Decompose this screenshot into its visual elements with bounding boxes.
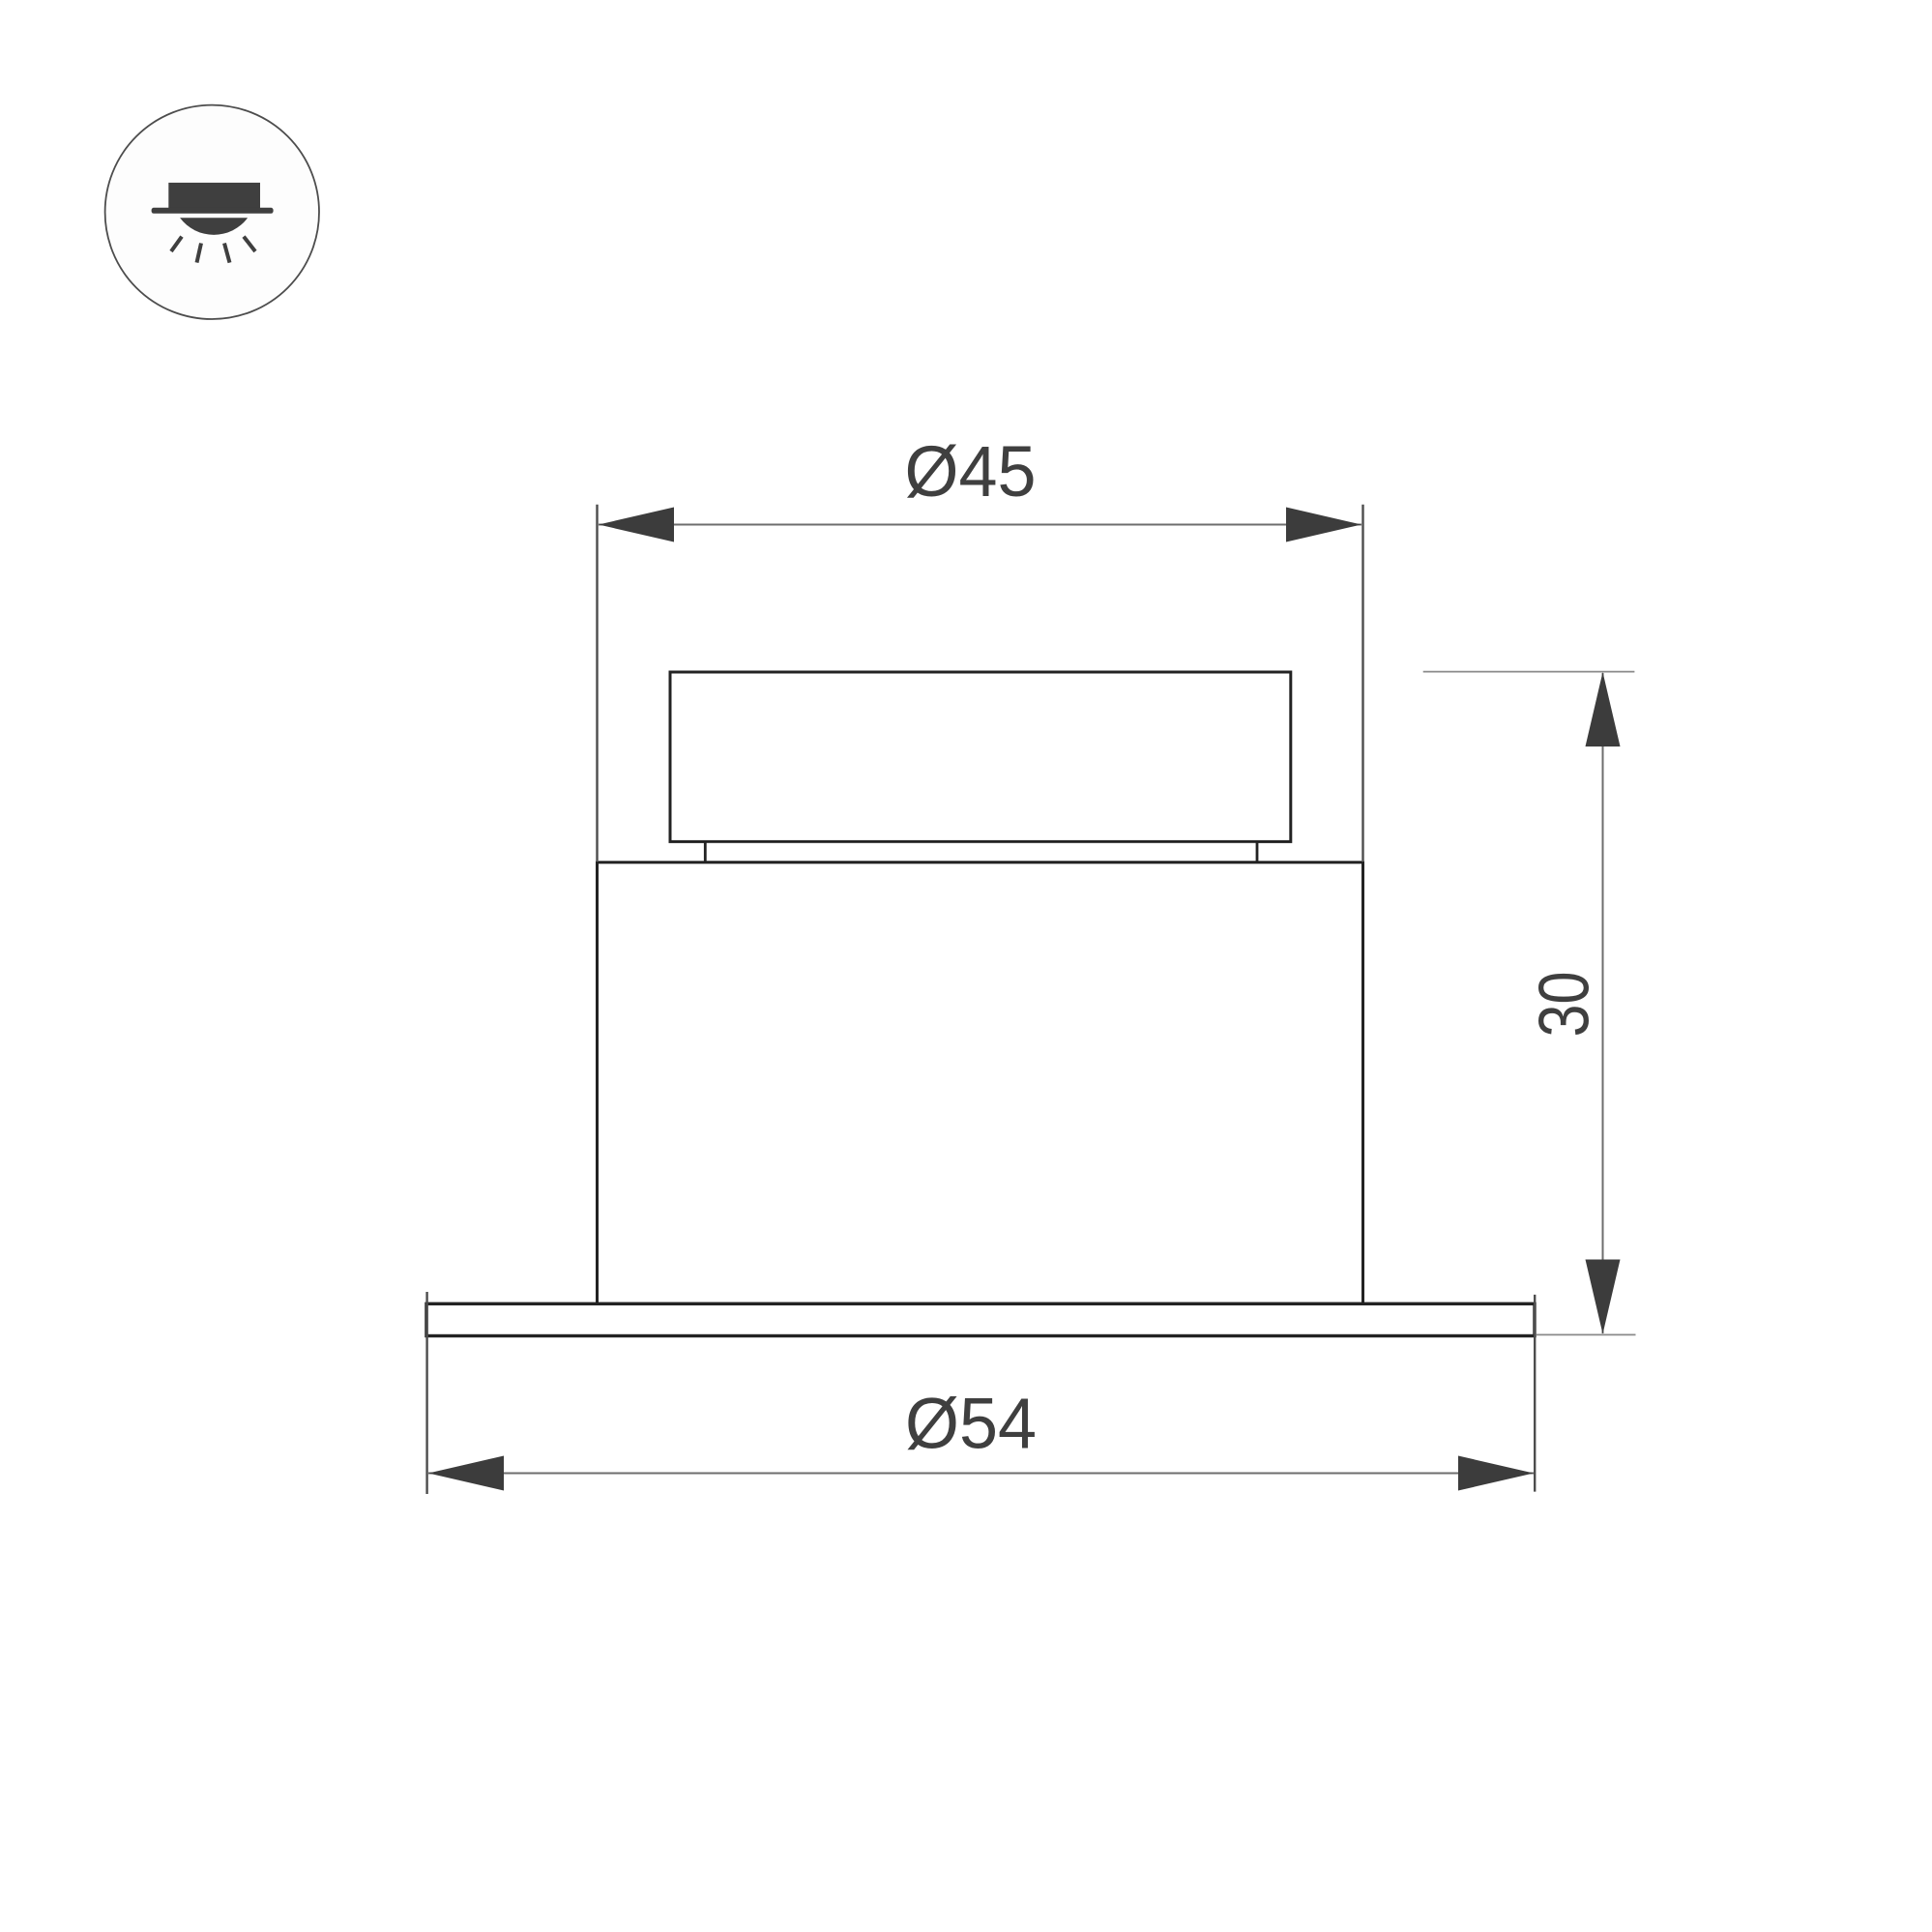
svg-text:Ø54: Ø54 [905, 1384, 1037, 1464]
svg-text:Ø45: Ø45 [905, 431, 1037, 512]
svg-text:30: 30 [1526, 972, 1604, 1038]
